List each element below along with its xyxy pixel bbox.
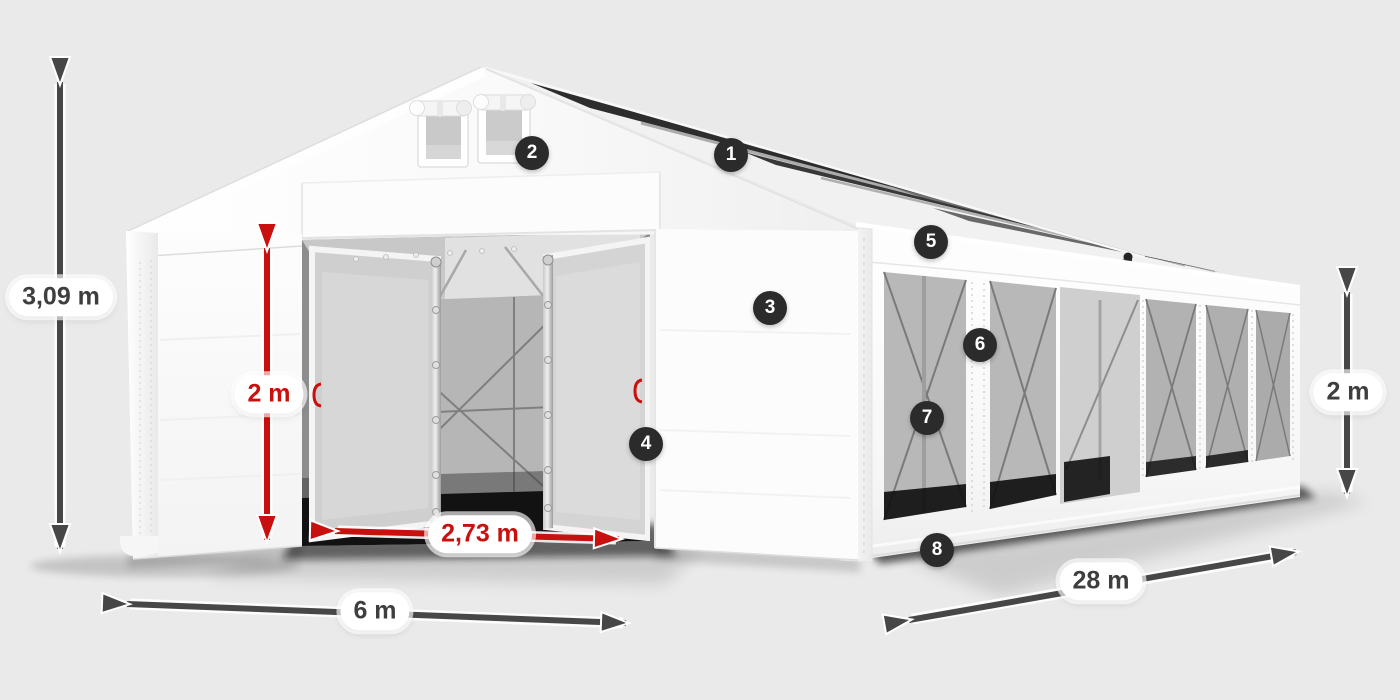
callout-badge-8[interactable]: 8 xyxy=(920,533,954,567)
callout-badge-4[interactable]: 4 xyxy=(629,427,663,461)
dimension-label-total-height: 3,09 m xyxy=(9,278,113,316)
dimension-label-entrance-width: 2,73 m xyxy=(428,515,532,553)
dimension-label-tent-width: 6 m xyxy=(340,592,409,630)
callout-badge-2[interactable]: 2 xyxy=(515,136,549,170)
callout-badge-7[interactable]: 7 xyxy=(910,401,944,435)
dimension-label-tent-length: 28 m xyxy=(1060,562,1143,600)
dimension-label-side-wall-height: 2 m xyxy=(1313,373,1382,411)
dimension-label-entrance-height: 2 m xyxy=(234,375,303,413)
callout-badge-3[interactable]: 3 xyxy=(753,291,787,325)
product-diagram: 3,09 m 2 m 2,73 m 6 m 28 m 2 m 1 2 3 4 5… xyxy=(0,0,1400,700)
callout-badge-6[interactable]: 6 xyxy=(963,328,997,362)
callout-badge-5[interactable]: 5 xyxy=(914,225,948,259)
tent-entrance-interior xyxy=(302,232,650,546)
callout-badge-1[interactable]: 1 xyxy=(714,138,748,172)
gable-vent-left xyxy=(410,100,472,167)
tent-illustration xyxy=(0,0,1400,700)
